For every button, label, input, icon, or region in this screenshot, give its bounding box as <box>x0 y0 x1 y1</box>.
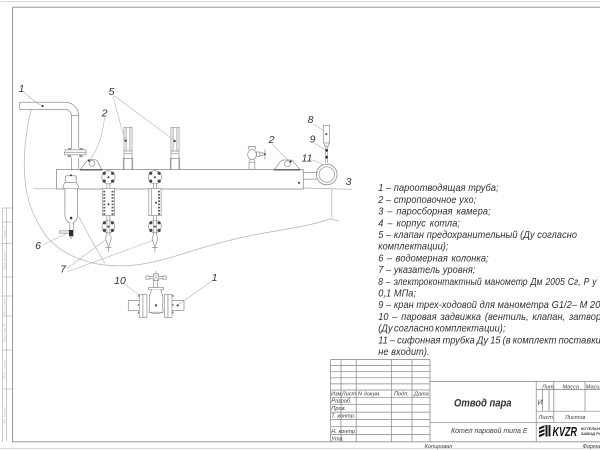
svg-text:Подп. и дата: Подп. и дата <box>2 360 6 380</box>
svg-text:(Ду согласно комплектации);: (Ду согласно комплектации); <box>378 323 506 335</box>
svg-text:Лист: Лист <box>341 392 357 398</box>
svg-text:Изм: Изм <box>331 392 342 398</box>
svg-text:N докум.: N докум. <box>358 392 381 398</box>
svg-text:Н. контр.: Н. контр. <box>331 429 356 435</box>
svg-text:3 – паросборная камера;: 3 – паросборная камера; <box>378 206 491 218</box>
svg-text:3: 3 <box>346 176 352 188</box>
svg-text:Лист: Лист <box>538 415 554 421</box>
svg-text:0,1 МПа;: 0,1 МПа; <box>378 288 416 300</box>
svg-text:Лит.: Лит. <box>541 384 555 390</box>
svg-text:6 – водомерная колонка;: 6 – водомерная колонка; <box>378 253 489 265</box>
svg-text:комплектации);: комплектации); <box>378 241 449 253</box>
svg-text:Котел паровой типа Е: Котел паровой типа Е <box>451 426 528 435</box>
svg-text:1 – пароотводящая труба;: 1 – пароотводящая труба; <box>378 183 499 195</box>
svg-text:ЗАВОД РОС: ЗАВОД РОС <box>581 431 600 436</box>
svg-text:Справ. N: Справ. N <box>2 225 6 239</box>
svg-text:8: 8 <box>308 114 314 126</box>
svg-text:10: 10 <box>114 275 126 287</box>
svg-text:8 – электроконтактный манометр: 8 – электроконтактный манометр Дм 2005 С… <box>378 275 598 287</box>
svg-text:2: 2 <box>268 134 275 146</box>
svg-text:Инв. N дубл.: Инв. N дубл. <box>2 297 6 315</box>
svg-text:Взам. инв. N: Взам. инв. N <box>2 323 6 342</box>
svg-text:6: 6 <box>35 240 41 252</box>
svg-text:Копировал: Копировал <box>425 444 454 450</box>
svg-text:Дата: Дата <box>413 392 429 398</box>
svg-text:1: 1 <box>19 83 25 95</box>
svg-text:5 – клапан предохранительный: 5 – клапан предохранительный (Ду согласн… <box>378 230 577 242</box>
svg-text:Подп.: Подп. <box>394 392 409 398</box>
svg-text:не входит).: не входит). <box>378 347 429 359</box>
svg-text:11 – сифонная трубка Ду 15: 11 – сифонная трубка Ду 15 (в комплект п… <box>378 335 600 347</box>
svg-text:10 – паровая задвижка (вент: 10 – паровая задвижка (вентиль, клапан, … <box>378 311 600 323</box>
svg-text:Масшт: Масшт <box>586 384 600 390</box>
svg-text:Формат А2: Формат А2 <box>583 444 600 450</box>
svg-text:11: 11 <box>302 152 313 164</box>
svg-text:Масса: Масса <box>563 384 580 390</box>
svg-text:Т. контр.: Т. контр. <box>331 413 355 419</box>
svg-text:1: 1 <box>212 272 218 284</box>
svg-text:Разраб.: Разраб. <box>331 399 351 405</box>
svg-text:4 – корпус котла;: 4 – корпус котла; <box>378 218 460 230</box>
svg-text:Инв. N подл.: Инв. N подл. <box>2 406 6 424</box>
svg-text:Листов: Листов <box>564 415 585 421</box>
svg-text:KVZR: KVZR <box>553 425 578 439</box>
svg-text:7: 7 <box>60 263 67 275</box>
svg-text:9: 9 <box>310 133 316 145</box>
svg-text:Утв.: Утв. <box>330 436 344 442</box>
svg-text:Отвод пара: Отвод пара <box>454 397 512 409</box>
svg-text:9 – кран трех-ходовой для м: 9 – кран трех-ходовой для манометра G1/2… <box>378 300 600 312</box>
svg-text:2 – строповочное ухо;: 2 – строповочное ухо; <box>377 194 476 206</box>
svg-text:5: 5 <box>109 86 115 98</box>
svg-text:2: 2 <box>101 108 108 120</box>
svg-text:Перв. примен.: Перв. примен. <box>2 250 6 271</box>
svg-text:Пров.: Пров. <box>331 406 346 412</box>
